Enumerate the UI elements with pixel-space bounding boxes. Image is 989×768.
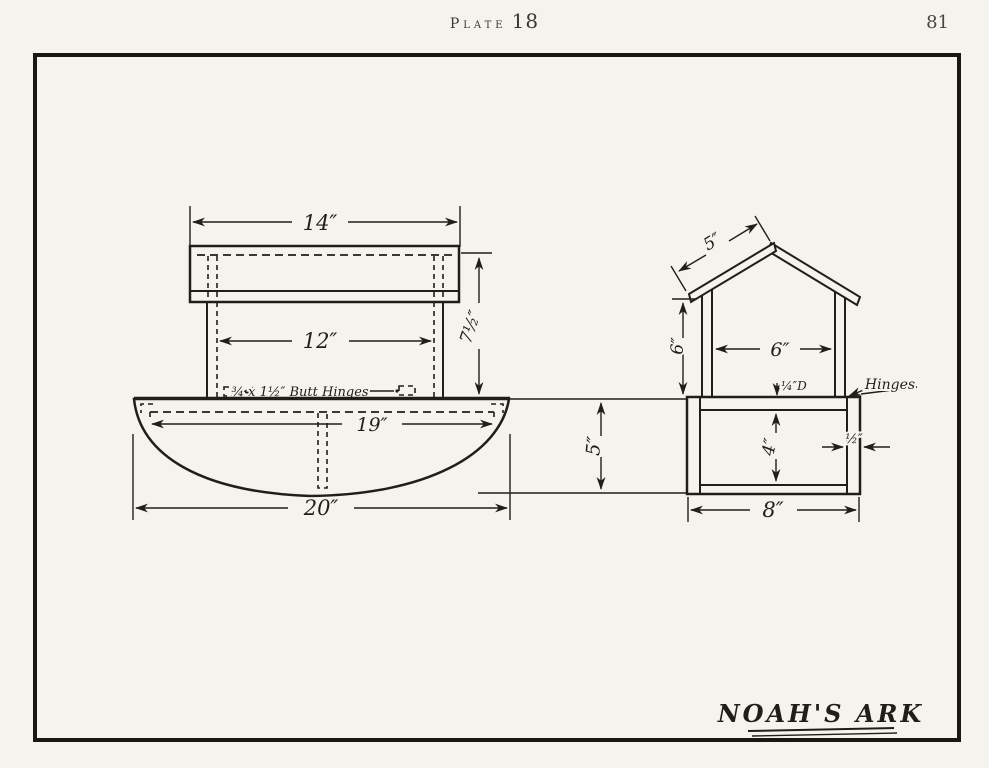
dim-hull-height-label: 5″ [582, 435, 606, 456]
ark-drawing: 14″ 12″ [0, 0, 989, 768]
dim-opening-width-label: 6″ [770, 339, 789, 361]
deck-thickness-label: ¼″D [781, 379, 807, 393]
dim-opening-width: 6″ [716, 339, 831, 361]
dim-hull-length-label: 20″ [303, 496, 339, 520]
cabin-roof-slab [190, 246, 459, 302]
dim-wall-height: 6″ [668, 299, 697, 394]
hull-side [134, 398, 510, 496]
dim-wall-height-label: 6″ [668, 336, 689, 355]
scanned-plate-page: Plate 18 81 14″ [0, 0, 989, 768]
hinges-label: Hinges [864, 377, 915, 393]
dim-roof-slope-label: 5″ [700, 229, 726, 255]
drawing-title-label: NOAH'S ARK [717, 699, 925, 728]
drawing-title: NOAH'S ARK [717, 699, 925, 736]
deck-thickness-note: ¼″D [777, 379, 807, 395]
dim-cabin-height-label: 7½″ [456, 307, 486, 346]
hinges-callout: Hinges [849, 377, 917, 396]
dim-deck-length-label: 19″ [356, 414, 387, 436]
dim-roof-width-label: 14″ [303, 211, 338, 235]
side-view-drawing: 14″ 12″ [133, 206, 687, 520]
dim-cabin-height: 7½″ [456, 253, 492, 394]
dim-hull-width-label: 8″ [762, 498, 783, 522]
dim-cabin-width-label: 12″ [303, 329, 338, 353]
dim-hull-width: 8″ [688, 497, 859, 522]
dim-cabin-width: 12″ [220, 329, 431, 353]
dim-roof-width: 14″ [190, 206, 460, 247]
dim-side-thickness-label: ½″ [845, 432, 863, 447]
end-view-drawing: 5″ 6″ 6″ [668, 216, 917, 522]
